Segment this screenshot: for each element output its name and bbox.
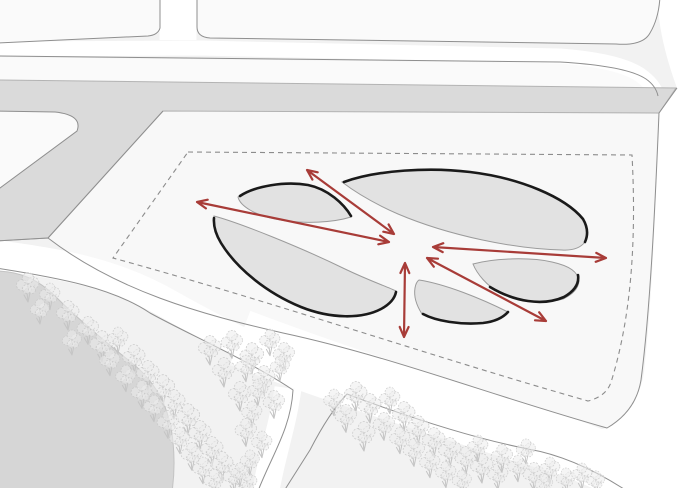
site-plan-diagram [0, 0, 700, 488]
city-block-top-middle [197, 0, 660, 44]
diagram-canvas [0, 0, 700, 488]
